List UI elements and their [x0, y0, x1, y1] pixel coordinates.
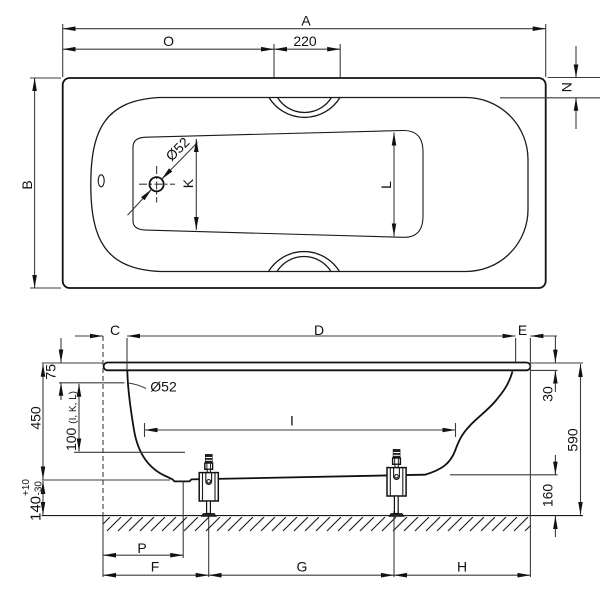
svg-text:140+10-30: 140+10-30 — [21, 479, 45, 521]
svg-text:220: 220 — [293, 33, 317, 49]
svg-text:450: 450 — [28, 406, 44, 430]
svg-text:Ø52: Ø52 — [162, 134, 192, 164]
svg-text:100 (I, K, L): 100 (I, K, L) — [63, 391, 79, 451]
svg-text:I: I — [290, 413, 294, 429]
svg-text:P: P — [137, 540, 146, 556]
svg-text:B: B — [19, 180, 35, 189]
svg-text:N: N — [559, 82, 575, 92]
svg-text:F: F — [151, 559, 160, 575]
svg-text:L: L — [378, 181, 394, 189]
svg-text:E: E — [518, 322, 527, 338]
svg-text:G: G — [297, 559, 308, 575]
svg-text:K: K — [180, 178, 196, 188]
svg-text:590: 590 — [565, 428, 581, 452]
svg-text:160: 160 — [540, 484, 556, 508]
svg-text:H: H — [457, 559, 467, 575]
svg-text:75: 75 — [43, 364, 59, 380]
svg-text:C: C — [110, 322, 120, 338]
svg-text:D: D — [314, 322, 324, 338]
svg-text:30: 30 — [540, 386, 556, 402]
svg-text:O: O — [163, 33, 174, 49]
svg-text:Ø52: Ø52 — [150, 379, 177, 395]
svg-text:A: A — [301, 13, 311, 29]
